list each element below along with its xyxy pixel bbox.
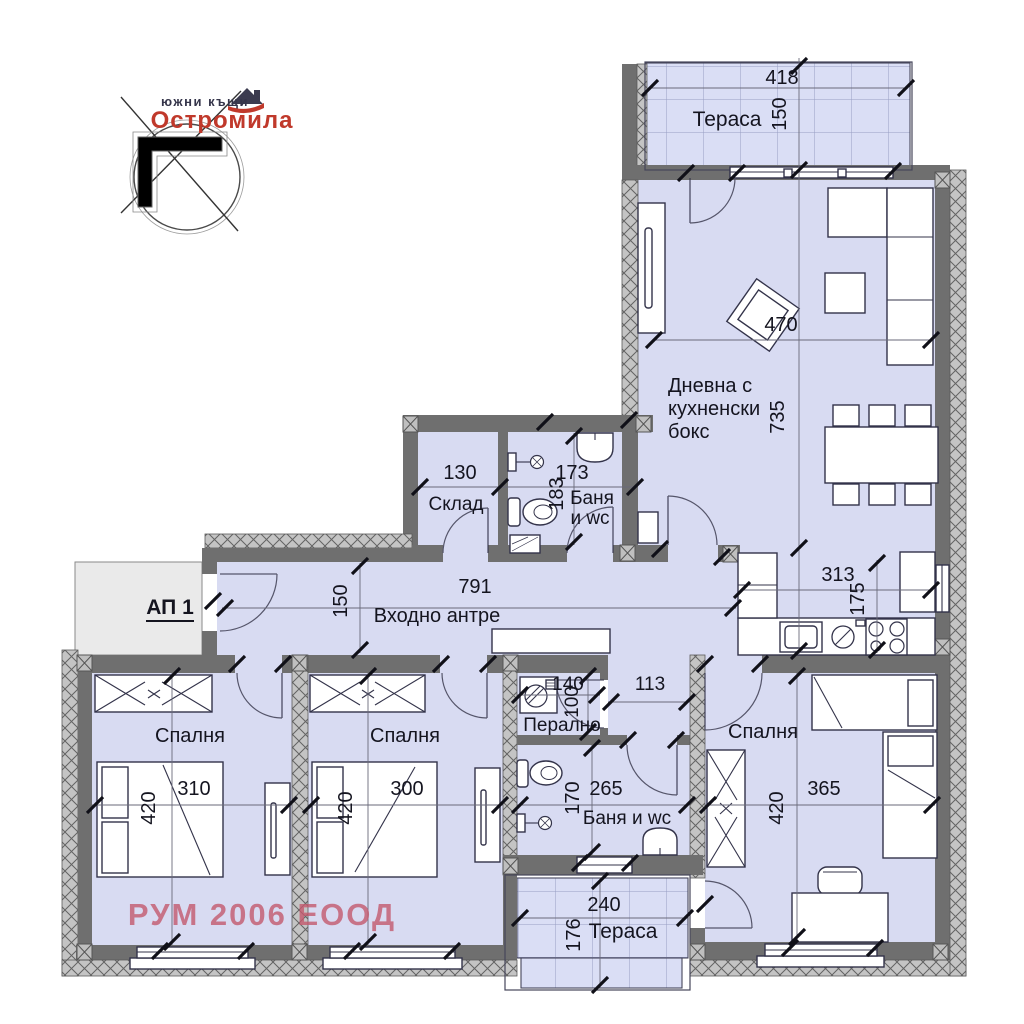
label-living-2: кухненски — [668, 398, 760, 420]
dim-terrace-top-h: 150 — [769, 97, 791, 130]
single-bed-top — [812, 675, 937, 730]
dim-hall-w: 791 — [458, 576, 491, 598]
dim-storage-w: 130 — [443, 462, 476, 484]
dim-terrace-bottom-h: 176 — [563, 918, 585, 951]
window-bedroom3 — [757, 944, 884, 967]
dim-bedroom2-h: 420 — [335, 791, 357, 824]
label-bedroom2: Спалня — [370, 725, 440, 747]
dim-corridor-w: 113 — [635, 674, 665, 695]
single-bed-right — [883, 732, 937, 858]
exterior-wall-right — [950, 170, 966, 976]
dim-bedroom2-w: 300 — [390, 778, 423, 800]
dim-bath2-w: 265 — [589, 778, 622, 800]
toilet-icon — [517, 760, 562, 787]
floorplan-drawing: южни къщи Остромила АП 1 — [0, 0, 1024, 1024]
dim-bath1-h: 183 — [546, 477, 568, 510]
dim-bedroom1-h: 420 — [138, 791, 160, 824]
wardrobe — [310, 675, 425, 712]
coffee-table — [825, 273, 865, 313]
dim-bedroom3-w: 365 — [807, 778, 840, 800]
window-bedroom1 — [130, 947, 255, 969]
dresser — [265, 783, 290, 875]
logo-brand: Остромила — [151, 107, 294, 134]
window-living-terrace — [730, 167, 893, 178]
label-storage: Склад — [429, 494, 484, 515]
window-kitchen — [936, 565, 949, 612]
dining-table — [825, 405, 938, 505]
label-bath1-2: и wc — [570, 508, 609, 529]
dim-living-w: 470 — [764, 314, 797, 336]
dim-bath2-h: 170 — [562, 781, 584, 814]
dim-living-h: 735 — [767, 400, 789, 433]
label-bath2: Баня и wc — [583, 808, 671, 829]
label-terrace-bottom: Тераса — [589, 920, 658, 943]
dresser — [475, 768, 500, 862]
dim-terrace-bottom-w: 240 — [587, 894, 620, 916]
stove-icon — [866, 619, 907, 655]
label-bath1-1: Баня — [570, 488, 614, 509]
wardrobe — [95, 675, 212, 712]
tv-cabinet — [638, 203, 665, 333]
label-hall: Входно антре — [374, 605, 501, 627]
dim-kitchen-h: 175 — [847, 582, 869, 615]
dim-hall-h: 150 — [330, 584, 352, 617]
hall-wardrobe — [492, 629, 610, 653]
dim-terrace-top-w: 418 — [765, 67, 798, 89]
label-living-1: Дневна с — [668, 375, 752, 397]
dim-laundry-h: 100 — [562, 686, 583, 718]
room-corridor — [608, 655, 690, 745]
label-laundry: Перално — [523, 715, 601, 736]
room-storage — [418, 432, 498, 545]
floorplan-page: южни къщи Остромила АП 1 — [0, 0, 1024, 1024]
label-bedroom3: Спалня — [728, 721, 798, 743]
watermark-text: РУМ 2006 ЕООД — [128, 897, 396, 932]
exterior-wall-hatched — [622, 180, 638, 425]
dim-bedroom3-h: 420 — [766, 791, 788, 824]
label-terrace-top: Тераса — [693, 108, 762, 131]
hall-cabinet-small — [638, 512, 658, 543]
wardrobe — [707, 750, 745, 867]
entrance-zone: АП 1 — [75, 562, 202, 655]
dim-bedroom1-w: 310 — [177, 778, 210, 800]
label-bedroom1: Спалня — [155, 725, 225, 747]
apartment-label: АП 1 — [146, 596, 194, 619]
label-living-3: бокс — [668, 421, 710, 443]
